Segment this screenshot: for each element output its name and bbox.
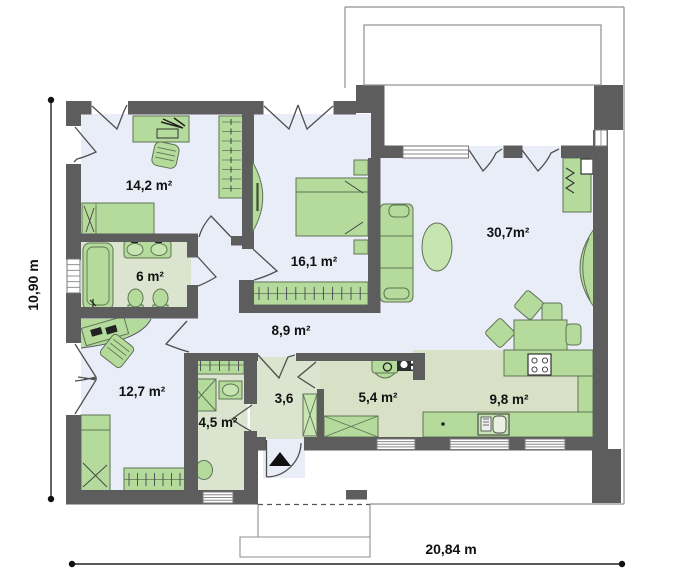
svg-text:8,9 m²: 8,9 m² (271, 323, 311, 338)
svg-text:6 m²: 6 m² (136, 269, 164, 284)
svg-text:20,84 m: 20,84 m (425, 541, 476, 557)
svg-text:30,7m²: 30,7m² (487, 225, 530, 240)
svg-text:3,6: 3,6 (275, 391, 294, 406)
svg-text:5,4 m²: 5,4 m² (358, 390, 398, 405)
svg-text:14,2 m²: 14,2 m² (126, 178, 173, 193)
svg-text:16,1 m²: 16,1 m² (291, 254, 338, 269)
svg-text:4,5 m²: 4,5 m² (198, 415, 238, 430)
svg-text:9,8 m²: 9,8 m² (489, 392, 529, 407)
svg-text:12,7 m²: 12,7 m² (119, 384, 166, 399)
svg-text:10,90 m: 10,90 m (25, 259, 41, 310)
